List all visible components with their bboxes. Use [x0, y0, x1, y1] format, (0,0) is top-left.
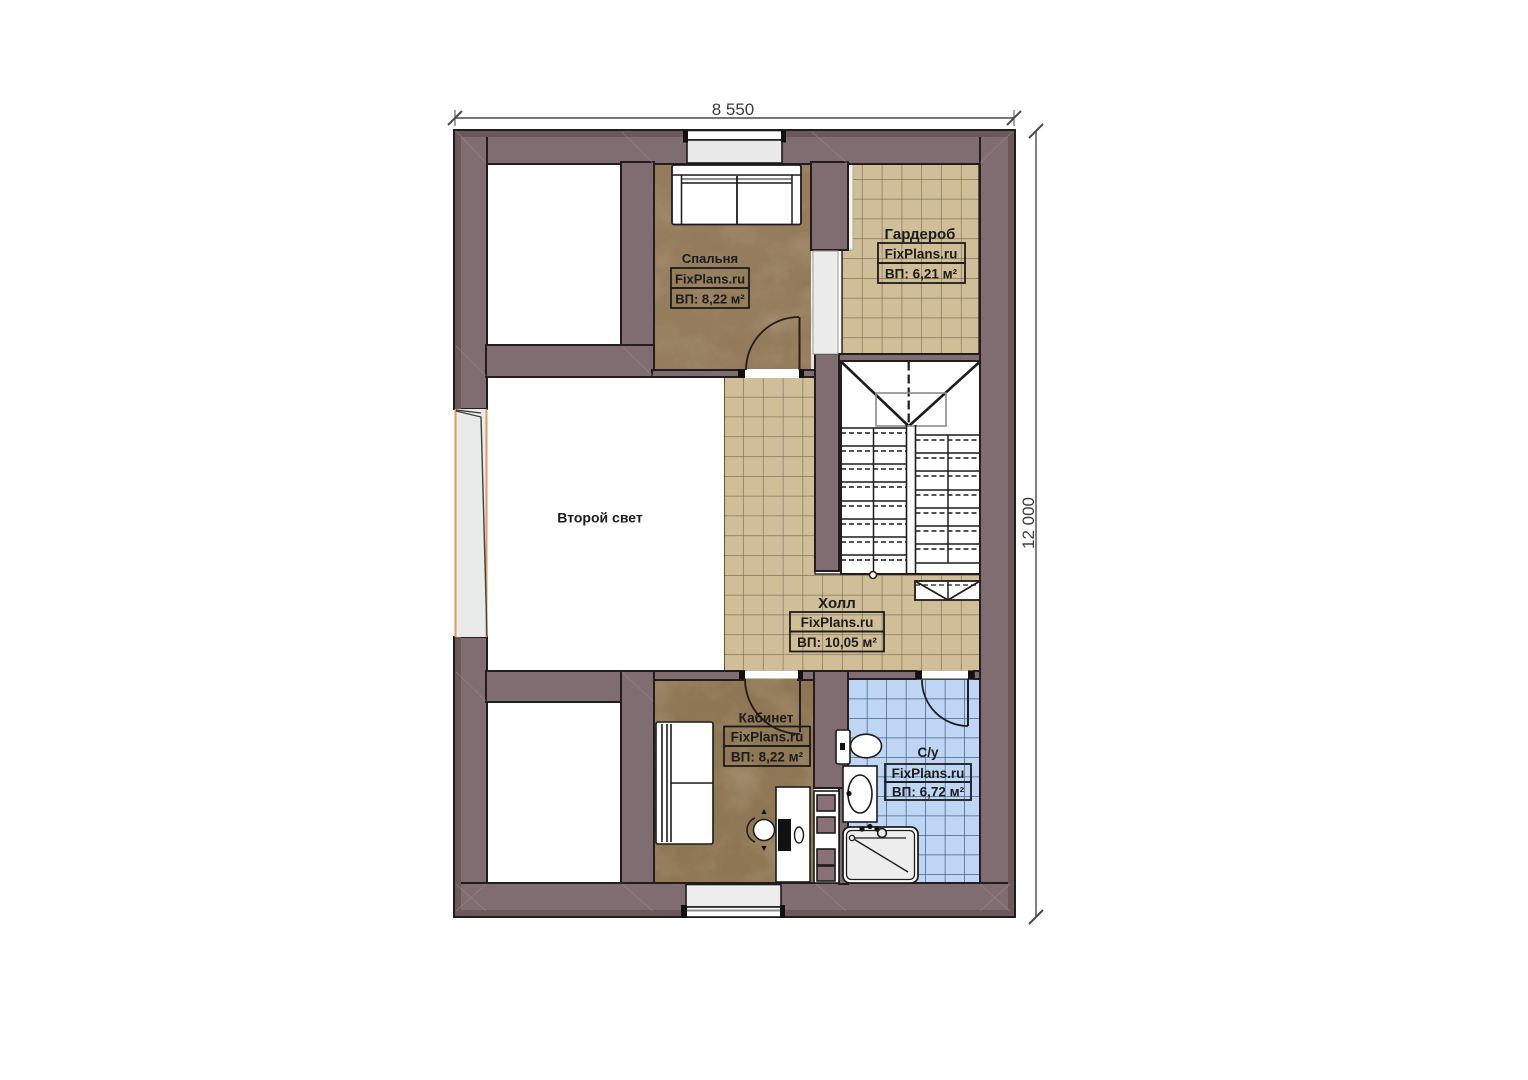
svg-text:FixPlans.ru: FixPlans.ru — [731, 730, 804, 745]
svg-text:С/у: С/у — [917, 745, 939, 760]
svg-text:ВП: 8,22 м²: ВП: 8,22 м² — [675, 292, 745, 307]
svg-text:Кабинет: Кабинет — [739, 711, 794, 726]
svg-text:8 550: 8 550 — [712, 100, 755, 119]
svg-text:FixPlans.ru: FixPlans.ru — [885, 247, 958, 262]
svg-text:Второй свет: Второй свет — [557, 510, 643, 526]
svg-text:Холл: Холл — [818, 595, 856, 612]
svg-text:FixPlans.ru: FixPlans.ru — [892, 766, 965, 781]
svg-text:ВП: 6,72 м²: ВП: 6,72 м² — [892, 785, 965, 800]
svg-text:ВП: 10,05 м²: ВП: 10,05 м² — [797, 635, 877, 650]
svg-text:FixPlans.ru: FixPlans.ru — [801, 615, 874, 630]
svg-text:ВП: 6,21 м²: ВП: 6,21 м² — [885, 267, 958, 282]
svg-text:Спальня: Спальня — [682, 251, 738, 266]
svg-text:ВП: 8,22 м²: ВП: 8,22 м² — [731, 750, 804, 765]
svg-text:12 000: 12 000 — [1019, 497, 1038, 549]
svg-text:Гардероб: Гардероб — [885, 226, 956, 243]
svg-text:FixPlans.ru: FixPlans.ru — [675, 272, 745, 287]
